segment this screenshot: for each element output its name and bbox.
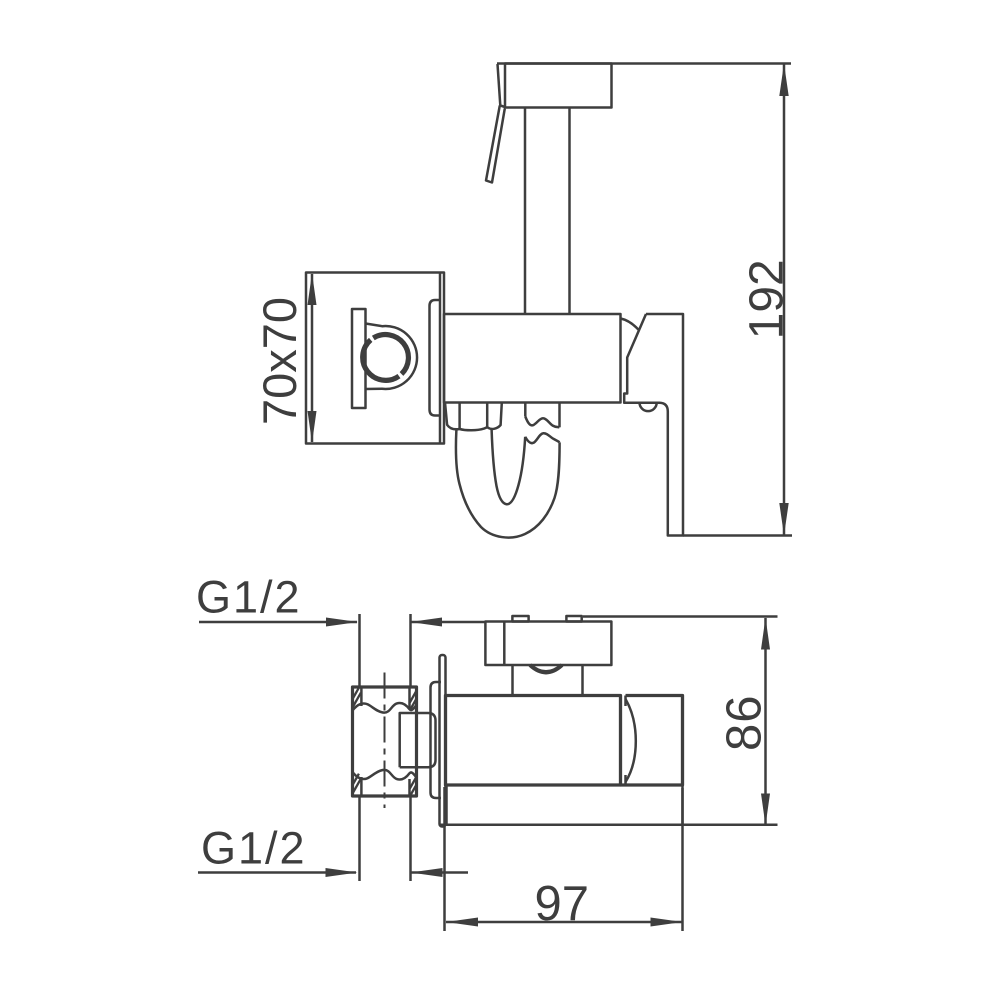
svg-text:86: 86 (718, 694, 772, 751)
svg-text:192: 192 (741, 259, 794, 339)
svg-text:97: 97 (535, 877, 590, 931)
svg-text:70x70: 70x70 (253, 297, 306, 425)
svg-text:G1/2: G1/2 (201, 823, 307, 874)
svg-text:G1/2: G1/2 (196, 572, 302, 623)
